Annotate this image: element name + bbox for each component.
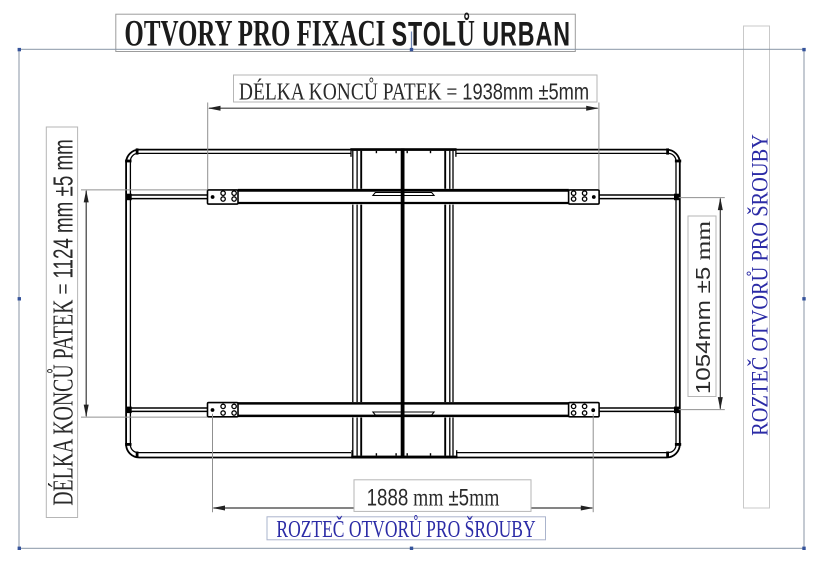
svg-text:OTVORY PRO FIXACI STOLŮ URBAN: OTVORY PRO FIXACI STOLŮ URBAN (124, 11, 571, 53)
svg-text:ROZTEČ OTVORŮ PRO ŠROUBY: ROZTEČ OTVORŮ PRO ŠROUBY (747, 134, 772, 436)
svg-text:ROZTEČ OTVORŮ PRO ŠROUBY: ROZTEČ OTVORŮ PRO ŠROUBY (276, 515, 535, 543)
svg-text:1888 mm ±5mm: 1888 mm ±5mm (367, 483, 500, 511)
svg-text:DÉLKA KONCŮ PATEK = 1938mm ±5m: DÉLKA KONCŮ PATEK = 1938mm ±5mm (239, 76, 589, 105)
svg-text:1054mm ±5 mm: 1054mm ±5 mm (692, 221, 716, 394)
svg-text:DÉLKA KONCŮ PATEK = 1124 mm ±5: DÉLKA KONCŮ PATEK = 1124 mm ±5 mm (46, 139, 80, 505)
